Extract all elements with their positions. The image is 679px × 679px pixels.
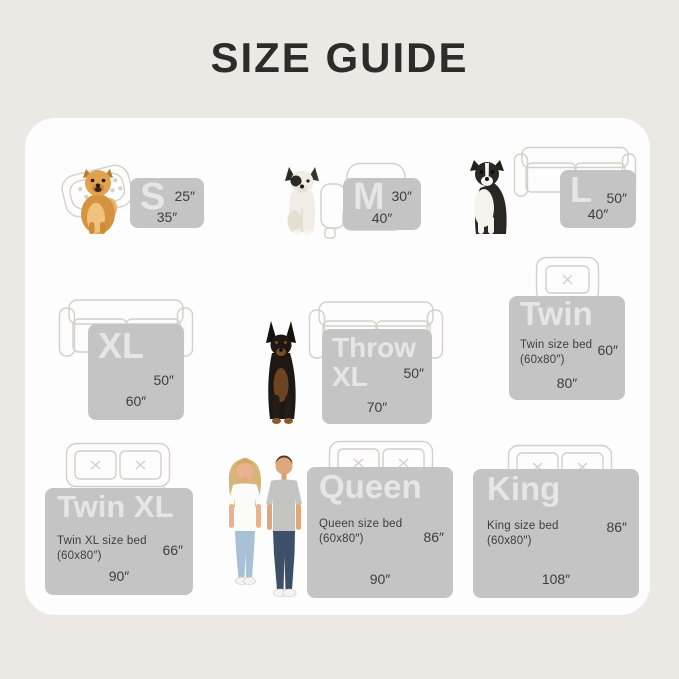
dimension-bottom: 35″	[157, 209, 178, 225]
dimension-right: 25″	[174, 188, 195, 204]
size-label: Queen	[319, 470, 422, 504]
size-swatch-s: S 25″ 35″	[130, 178, 204, 228]
dimension-bottom: 70″	[367, 399, 388, 415]
dimension-bottom: 40″	[372, 210, 393, 226]
couple-icon	[219, 452, 312, 598]
dimension-right: 86″	[423, 529, 444, 545]
doberman-dog-icon	[260, 321, 304, 425]
dimension-right: 86″	[606, 519, 627, 535]
dimension-right: 60″	[597, 342, 618, 358]
size-label: L	[570, 172, 592, 209]
size-swatch-king: King King size bed (60x80″) 86″ 108″	[473, 469, 639, 598]
size-label: Twin XL	[57, 491, 174, 523]
french-bulldog-icon	[283, 166, 321, 236]
dimension-right: 50″	[403, 365, 424, 381]
border-collie-dog-icon	[467, 158, 512, 236]
size-swatch-throw-xl: Throw XL 50″ 70″	[322, 329, 432, 424]
size-label: Throw XL	[332, 334, 424, 391]
size-swatch-l: L 50″ 40″	[560, 170, 636, 228]
size-label: Twin	[520, 297, 593, 331]
size-guide-card: S 25″ 35″ M 30″ 40″	[25, 118, 650, 615]
size-note: Queen size bed (60x80″)	[319, 517, 429, 547]
dimension-bottom: 40″	[588, 206, 609, 222]
pomeranian-dog-icon	[77, 166, 119, 236]
size-note: Twin size bed (60x80″)	[520, 338, 598, 368]
dimension-right: 30″	[391, 188, 412, 204]
dimension-bottom: 60″	[126, 393, 147, 409]
dimension-right: 66″	[162, 542, 183, 558]
size-swatch-twin: Twin Twin size bed (60x80″) 60″ 80″	[509, 296, 625, 400]
size-swatch-m: M 30″ 40″	[343, 178, 421, 230]
dimension-bottom: 90″	[370, 571, 391, 587]
dimension-bottom: 108″	[542, 571, 570, 587]
size-note: King size bed (60x80″)	[487, 519, 597, 549]
page-title: SIZE GUIDE	[0, 34, 679, 82]
size-note: Twin XL size bed (60x80″)	[57, 534, 169, 564]
size-swatch-xl: XL 50″ 60″	[88, 324, 184, 420]
size-swatch-queen: Queen Queen size bed (60x80″) 86″ 90″	[307, 467, 453, 598]
dimension-right: 50″	[153, 372, 174, 388]
dimension-right: 50″	[606, 190, 627, 206]
size-label: XL	[98, 328, 144, 365]
dimension-bottom: 90″	[109, 568, 130, 584]
dimension-bottom: 80″	[557, 375, 578, 391]
size-label: King	[487, 472, 560, 506]
size-swatch-twin-xl: Twin XL Twin XL size bed (60x80″) 66″ 90…	[45, 488, 193, 595]
